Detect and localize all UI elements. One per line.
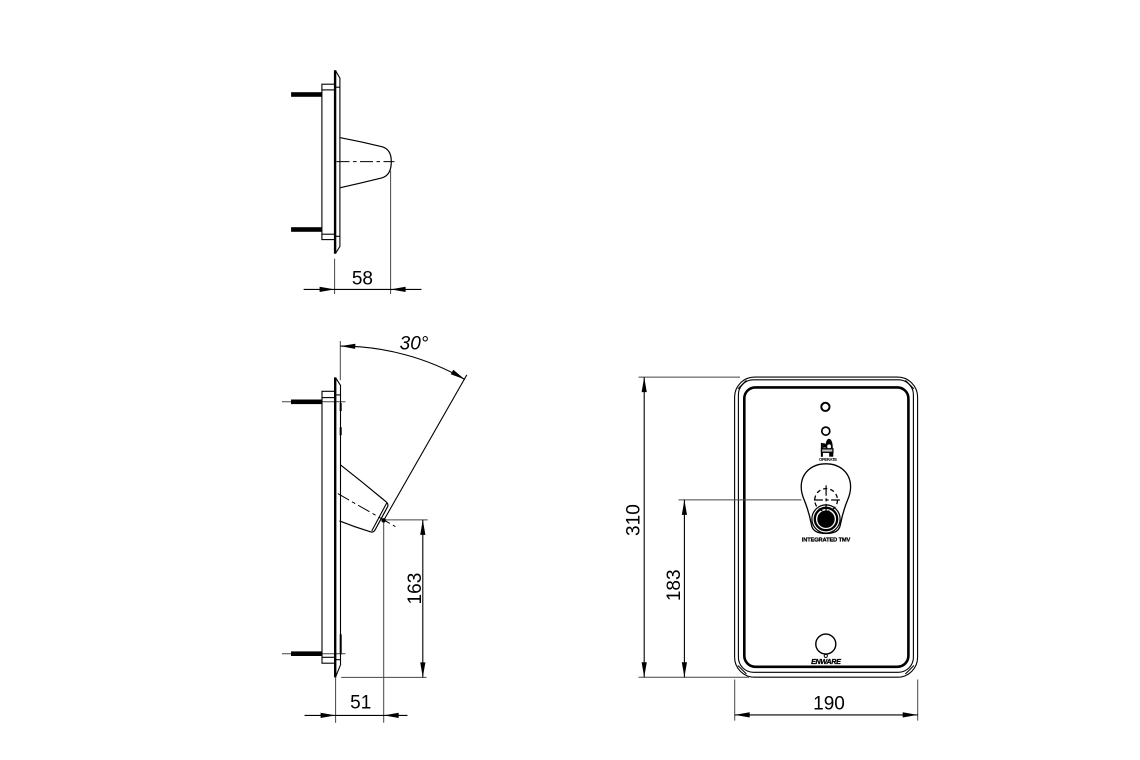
svg-text:ENWARE: ENWARE (811, 657, 841, 666)
svg-text:163: 163 (405, 573, 426, 605)
svg-text:183: 183 (664, 569, 685, 601)
svg-text:51: 51 (350, 693, 371, 714)
svg-text:190: 190 (813, 694, 845, 715)
svg-text:58: 58 (352, 269, 373, 290)
svg-text:INTEGRATED TMV: INTEGRATED TMV (802, 537, 851, 543)
svg-text:30°: 30° (400, 334, 429, 355)
svg-text:OPERATE: OPERATE (819, 457, 837, 462)
svg-text:310: 310 (624, 504, 645, 536)
